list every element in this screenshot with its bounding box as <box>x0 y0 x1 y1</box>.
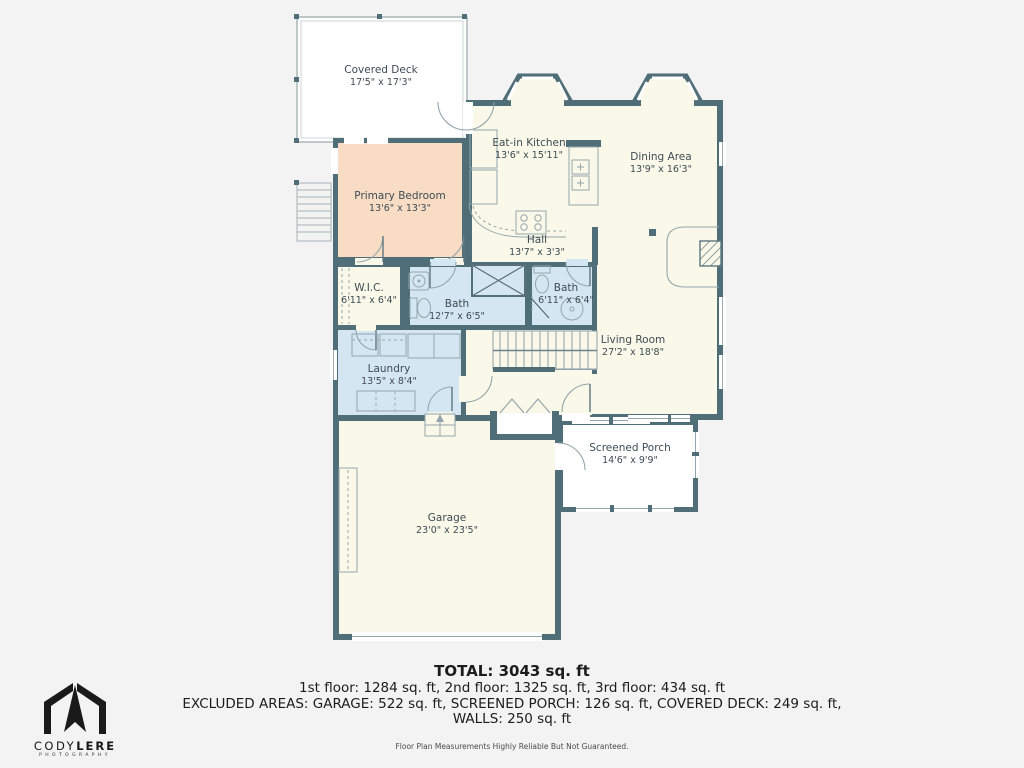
total-area-text: TOTAL: 3043 sq. ft <box>0 662 1024 681</box>
covered-deck-structure <box>294 14 467 143</box>
logo-brand-secondary: LERE <box>76 739 116 753</box>
logo-brand: CODYLERE <box>30 740 120 753</box>
walls-area-text: WALLS: 250 sq. ft <box>0 712 1024 728</box>
floor-plan-drawing <box>0 0 1024 768</box>
floors-area-text: 1st floor: 1284 sq. ft, 2nd floor: 1325 … <box>0 681 1024 697</box>
screened-porch-walls <box>555 417 699 512</box>
laundry-walls <box>336 328 464 418</box>
wic-walls <box>336 265 403 328</box>
area-summary: TOTAL: 3043 sq. ft 1st floor: 1284 sq. f… <box>0 662 1024 751</box>
staircase <box>493 331 597 372</box>
bath-hall-walls <box>530 265 595 328</box>
primary-bedroom-walls <box>331 137 465 260</box>
disclaimer-text: Floor Plan Measurements Highly Reliable … <box>0 742 1024 751</box>
excluded-areas-text: EXCLUDED AREAS: GARAGE: 522 sq. ft, SCRE… <box>0 697 1024 713</box>
floor-plan-page: Covered Deck 17'5" x 17'3" Eat-in Kitche… <box>0 0 1024 768</box>
logo-subtitle: PHOTOGRAPHY <box>30 753 120 759</box>
photographer-logo: CODYLERE PHOTOGRAPHY <box>30 680 120 759</box>
logo-brand-primary: CODY <box>34 739 76 753</box>
deck-stairs <box>294 180 331 241</box>
logo-mountain-icon <box>38 680 112 736</box>
garage-walls <box>336 418 558 641</box>
